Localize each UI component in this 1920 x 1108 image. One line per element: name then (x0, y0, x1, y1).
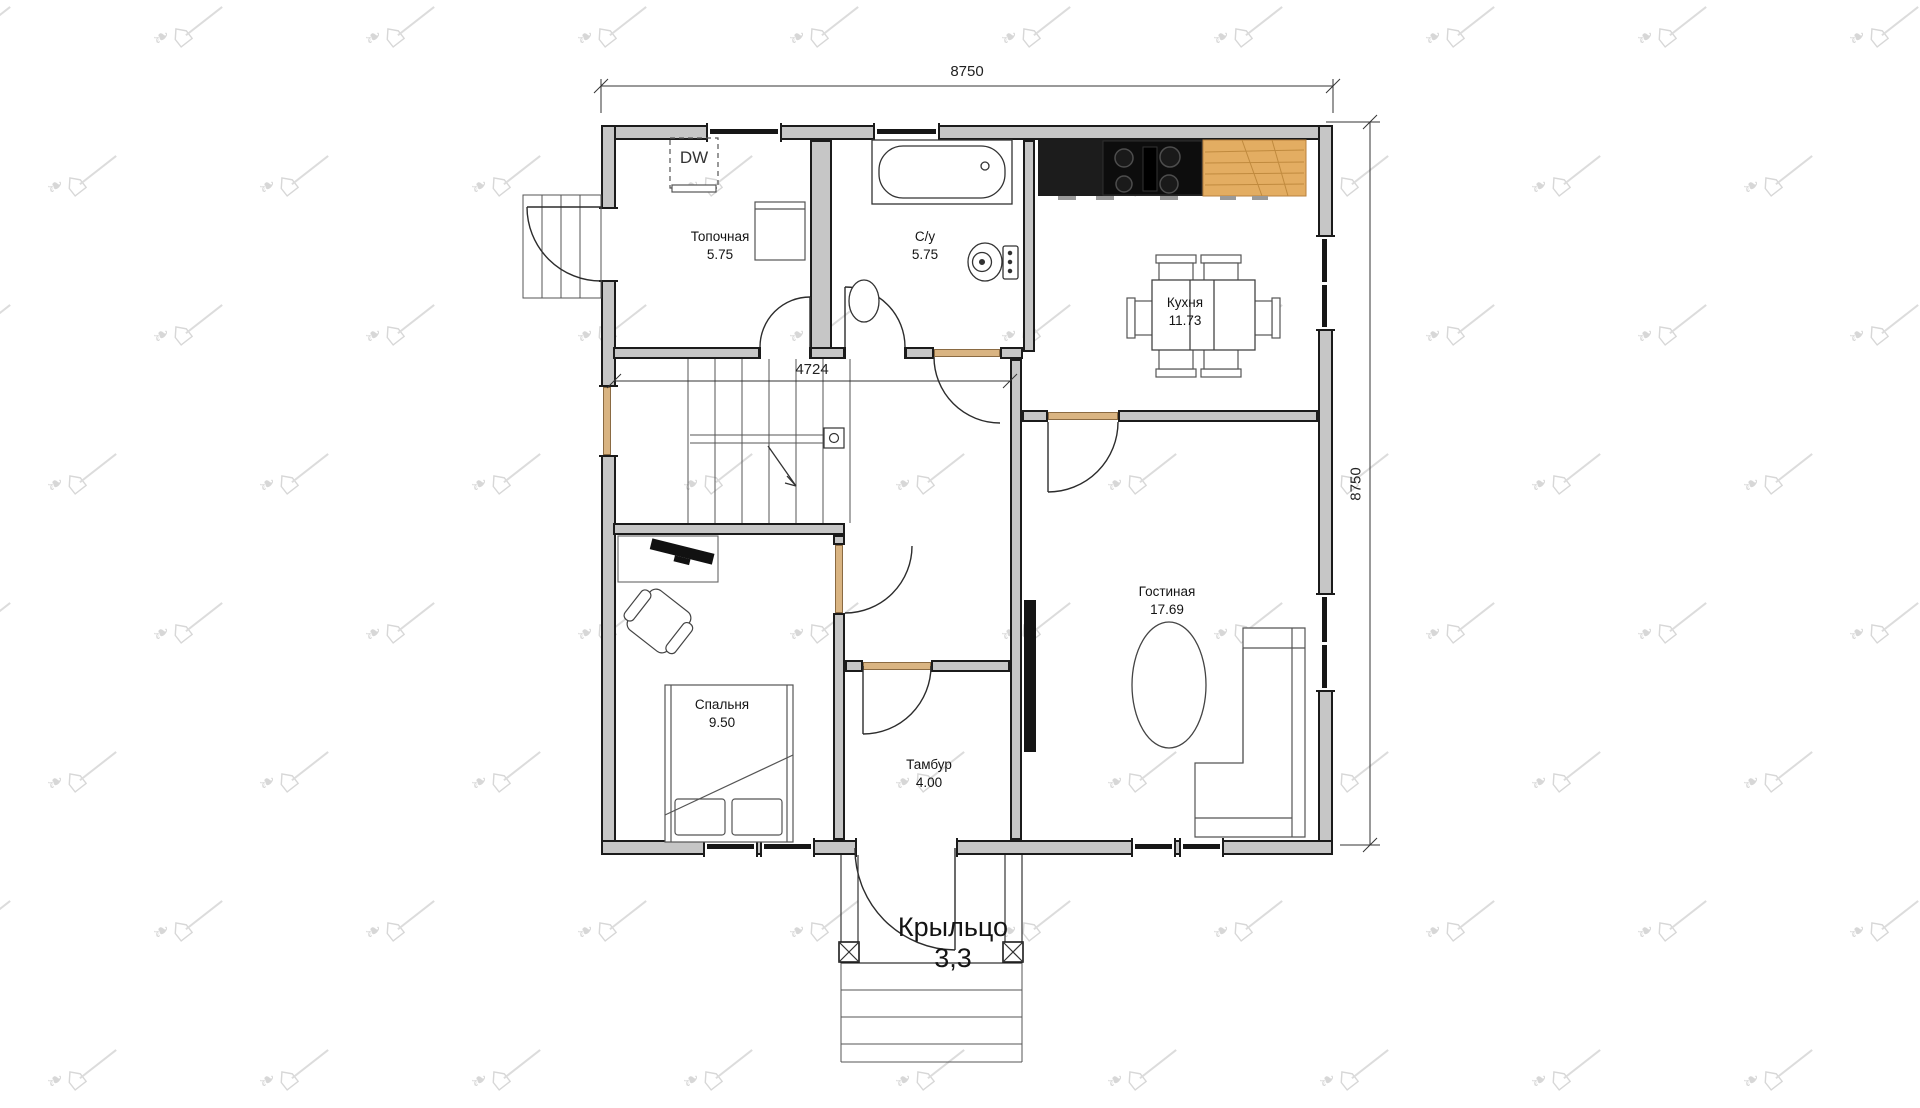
stair-direction-arrow (768, 446, 796, 486)
kitchen-door (934, 357, 1000, 423)
corner-sofa (1195, 628, 1305, 837)
room-area: 17.69 (1139, 601, 1196, 619)
exterior-side-steps (523, 195, 601, 298)
dishwasher-door (672, 185, 716, 192)
room-label-kitchen: Кухня 11.73 (1167, 294, 1203, 329)
kitchen-counter-wood (1203, 140, 1306, 200)
boiler-door (760, 297, 810, 347)
room-name: Крыльцо (898, 912, 1008, 943)
room-name: С/у (912, 228, 938, 246)
boiler-cabinet (755, 202, 805, 260)
room-name: Гостиная (1139, 583, 1196, 601)
room-area: 3,3 (898, 943, 1008, 974)
room-label-living: Гостиная 17.69 (1139, 583, 1196, 618)
bedroom-door (845, 546, 912, 613)
living-door (1048, 422, 1118, 492)
room-label-bath: С/у 5.75 (912, 228, 938, 263)
dimension-hall-width: 4724 (795, 361, 828, 378)
room-name: Тамбур (906, 756, 952, 774)
room-label-bedroom: Спальня 9.50 (695, 696, 749, 731)
cabinet-handles-wood (1220, 196, 1268, 200)
dimension-right-height: 8750 (1348, 467, 1365, 500)
room-name: Кухня (1167, 294, 1203, 312)
room-area: 5.75 (912, 246, 938, 264)
cabinet-handles-black (1058, 196, 1178, 200)
living-tv (1024, 600, 1036, 752)
stair-newel-post (824, 428, 844, 448)
room-area: 4.00 (906, 774, 952, 792)
armchair (618, 582, 699, 661)
door-jambs (760, 347, 905, 359)
dishwasher-label: DW (680, 148, 708, 168)
room-area: 9.50 (695, 714, 749, 732)
boiler-exterior-door (527, 207, 601, 281)
pedestal-sink (849, 280, 879, 322)
room-name: Топочная (691, 228, 750, 246)
porch-steps (841, 963, 1022, 1062)
dimension-top-width: 8750 (950, 63, 983, 80)
room-label-porch: Крыльцо 3,3 (898, 912, 1008, 974)
bathtub (872, 140, 1012, 204)
kitchen-counter-black (1038, 140, 1203, 200)
tambur-door (863, 666, 931, 734)
living-oval-table (1132, 622, 1206, 748)
room-label-boiler: Топочная 5.75 (691, 228, 750, 263)
room-name: Спальня (695, 696, 749, 714)
stove-divider (1143, 147, 1157, 191)
room-area: 5.75 (691, 246, 750, 264)
floor-plan-page: ❧⌂❧⌂❧⌂❧⌂❧⌂❧⌂❧⌂❧⌂❧⌂❧⌂❧⌂❧⌂❧⌂❧⌂❧⌂❧⌂❧⌂❧⌂❧⌂❧⌂… (0, 0, 1920, 1080)
room-area: 11.73 (1167, 312, 1203, 330)
room-label-tambur: Тамбур 4.00 (906, 756, 952, 791)
toilet (968, 243, 1018, 281)
